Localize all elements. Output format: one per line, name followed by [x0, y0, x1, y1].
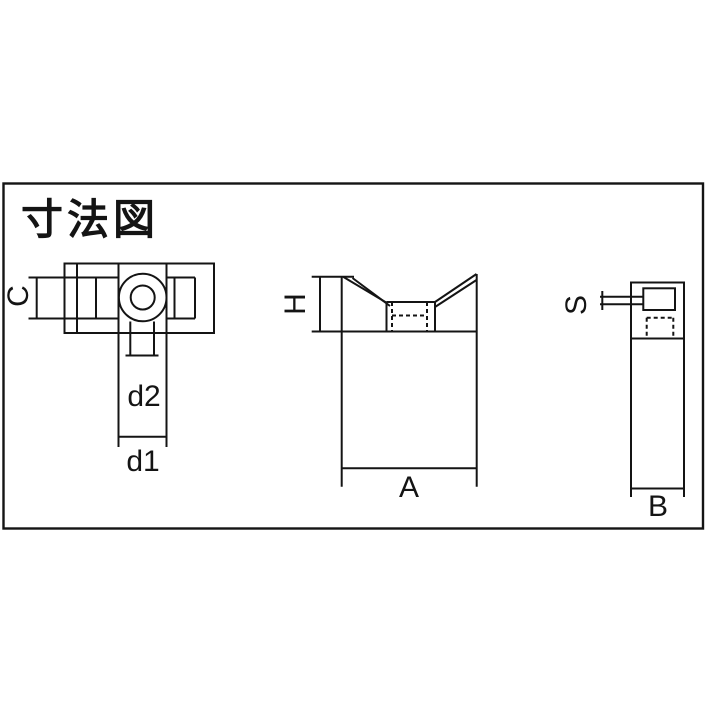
dim-label-d1: d1 — [126, 447, 159, 477]
dim-label-s: S — [562, 295, 592, 315]
front-view-drawing — [312, 274, 477, 487]
side-view-drawing — [600, 283, 684, 498]
top-view-drawing — [29, 264, 215, 448]
mounting-hole-inner — [131, 286, 155, 310]
dim-label-d2: d2 — [127, 382, 160, 412]
right-arm-outer — [435, 274, 477, 302]
dim-label-b: B — [648, 492, 668, 522]
right-arm-inner — [435, 280, 477, 307]
side-view-body-outline — [631, 283, 684, 489]
drawing-lines — [0, 0, 713, 713]
mounting-hole-outer — [119, 274, 167, 322]
dim-label-a: A — [399, 473, 419, 503]
hidden-slot-front — [392, 302, 427, 332]
side-view-head-channel — [643, 288, 675, 310]
dimension-drawing: 寸法図 C d2 d1 H A S B — [0, 0, 713, 713]
hidden-slot-side — [647, 318, 674, 339]
left-arm-inner — [353, 278, 391, 306]
dim-label-h: H — [281, 293, 311, 315]
drawing-title: 寸法図 — [21, 197, 159, 243]
dim-label-c: C — [4, 285, 34, 307]
